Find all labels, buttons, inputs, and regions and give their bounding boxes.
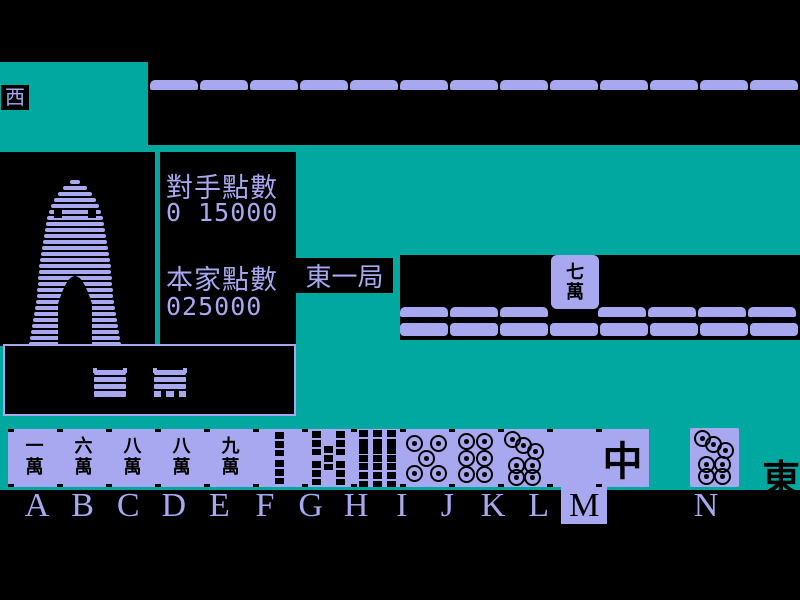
score-panel: 對手點數 0 15000 本家點數 025000	[160, 152, 296, 346]
hand-tile-K-7-pin[interactable]	[500, 429, 549, 487]
wall-tile-back	[500, 80, 548, 90]
game-screen: 西 對手點數 0 15000 本家點數 025000 東一局 七 萬	[0, 0, 800, 600]
west-wind-indicator: 西	[1, 85, 29, 110]
discarded-tile-top-char: 七	[566, 262, 584, 282]
wall-tile-back	[500, 323, 548, 336]
wall-tile-back	[700, 323, 748, 336]
player-score-value: 025000	[166, 292, 290, 321]
wall-row1-right	[598, 307, 796, 317]
tile-table-icon	[153, 368, 187, 398]
round-label: 東一局	[305, 257, 383, 294]
wall-tile-back	[550, 80, 598, 90]
tile-letter-B[interactable]: B	[60, 487, 106, 524]
tile-letter-I[interactable]: I	[379, 487, 425, 524]
wall-tile-back	[300, 80, 348, 90]
hand-tile-H-9-sou[interactable]	[353, 429, 402, 487]
hand-tile-I-5-pin[interactable]	[402, 429, 451, 487]
discarded-tile-7man: 七 萬	[551, 255, 599, 309]
opponent-score-value: 0 15000	[166, 198, 290, 227]
wall-tile-back	[450, 80, 498, 90]
hand-tile-D-8-man[interactable]: 八萬	[157, 429, 206, 487]
tile-letter-H[interactable]: H	[333, 487, 379, 524]
tile-letter-L[interactable]: L	[516, 487, 562, 524]
tile-letter-A[interactable]: A	[14, 487, 60, 524]
hand-tile-C-8-man[interactable]: 八萬	[108, 429, 157, 487]
hand-tile-B-6-man[interactable]: 六萬	[59, 429, 108, 487]
wall-tile-back	[450, 307, 498, 317]
tile-letter-G[interactable]: G	[288, 487, 334, 524]
wall-tile-back	[650, 323, 698, 336]
tower-graphic-box	[0, 152, 155, 346]
tile-letter-E[interactable]: E	[196, 487, 242, 524]
tile-letter-K[interactable]: K	[470, 487, 516, 524]
wall-tile-back	[750, 323, 798, 336]
wall-tile-back	[400, 307, 448, 317]
drawn-tile-N[interactable]	[690, 428, 739, 487]
wall-tile-back	[550, 323, 598, 336]
wall-tile-back	[700, 80, 748, 90]
hand-tile-L-white-dragon[interactable]	[549, 429, 598, 487]
tile-letter-J[interactable]: J	[424, 487, 470, 524]
tile-letter-C[interactable]: C	[105, 487, 151, 524]
letter-row: ABCDEFGHIJKLMN	[0, 487, 800, 527]
hand-tile-G-5-sou[interactable]	[304, 429, 353, 487]
wall-tile-back	[500, 307, 548, 317]
discard-area: 七 萬	[400, 255, 800, 340]
wall-tile-back	[600, 80, 648, 90]
wall-tile-back	[750, 80, 798, 90]
hand-strip: 一萬六萬八萬八萬九萬中	[8, 429, 649, 487]
tile-letter-N[interactable]: N	[683, 487, 729, 524]
wall-tile-back	[350, 80, 398, 90]
wall-tile-back	[698, 307, 746, 317]
opponent-area	[148, 0, 800, 145]
hand-tile-M-red-dragon[interactable]: 中	[598, 429, 647, 487]
hand-tile-J-6-pin[interactable]	[451, 429, 500, 487]
tile-letter-D[interactable]: D	[151, 487, 197, 524]
wall-tile-back	[598, 307, 646, 317]
tile-stack-icon	[93, 368, 127, 398]
tile-stack-box	[3, 344, 296, 416]
wall-tile-back	[400, 323, 448, 336]
hand-tile-E-9-man[interactable]: 九萬	[206, 429, 255, 487]
wall-tile-back	[200, 80, 248, 90]
west-wind-label: 西	[5, 88, 25, 108]
wall-row1-left	[400, 307, 548, 317]
wall-row2	[400, 323, 798, 336]
discarded-tile-bottom-char: 萬	[566, 282, 584, 302]
tile-letter-M-selected[interactable]: M	[561, 487, 607, 524]
tile-letter-F[interactable]: F	[242, 487, 288, 524]
opponent-wall-row	[150, 80, 800, 90]
wall-tile-back	[748, 307, 796, 317]
wall-tile-back	[650, 80, 698, 90]
wall-tile-back	[150, 80, 198, 90]
wall-tile-back	[400, 80, 448, 90]
tower-icon	[0, 152, 155, 346]
wall-tile-back	[450, 323, 498, 336]
wall-tile-back	[648, 307, 696, 317]
hand-tile-A-1-man[interactable]: 一萬	[10, 429, 59, 487]
wall-tile-back	[250, 80, 298, 90]
hand-tile-F-2-sou[interactable]	[255, 429, 304, 487]
wall-tile-back	[600, 323, 648, 336]
round-indicator: 東一局	[296, 258, 393, 293]
